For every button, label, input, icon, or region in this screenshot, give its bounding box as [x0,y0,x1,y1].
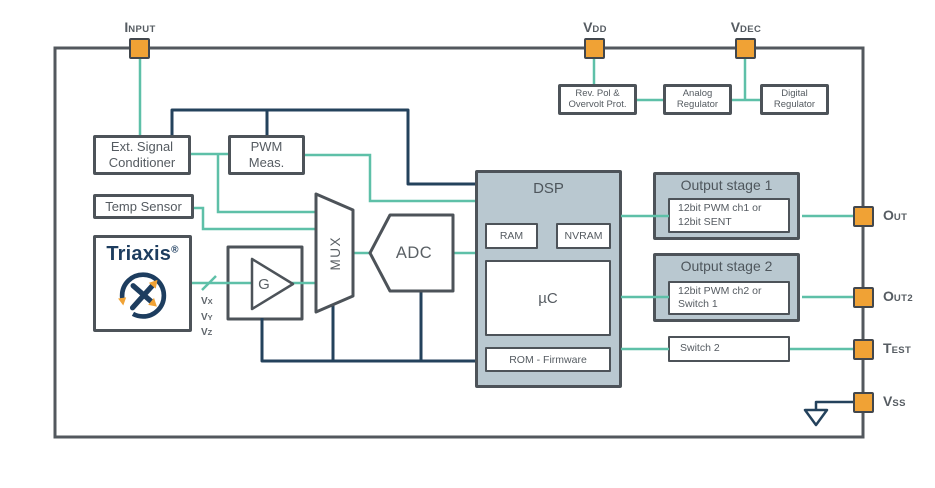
block-diagram: Rev. Pol & Overvolt Prot. Analog Regulat… [0,0,935,488]
dsp-title: DSP [475,180,622,197]
digital-reg-line2: Regulator [774,100,815,111]
pin-vdd [584,38,605,59]
output-stage2-option-box: 12bit PWM ch2 or Switch 1 [668,281,790,315]
mux-label: MUX [318,198,352,308]
ext-signal-line1: Ext. Signal [111,139,173,155]
signal-vz: VZ [201,324,213,340]
rom-firmware-block: ROM - Firmware [485,347,611,372]
pwm-meas-line2: Meas. [249,155,284,171]
temp-sensor-block: Temp Sensor [93,194,194,219]
rev-pol-line2: Overvolt Prot. [568,100,626,111]
output-stage1-line1: 12bit PWM ch1 or [678,202,761,215]
pin-vdd-label: VDD [559,19,631,37]
triaxis-icon [114,266,172,324]
pin-vdec [735,38,756,59]
gain-label: G [250,272,278,296]
signal-labels: VX VY VZ [201,293,213,340]
pin-input-label: INPUT [104,19,176,37]
analog-reg-line2: Regulator [677,100,718,111]
temp-sensor-label: Temp Sensor [105,199,182,215]
triaxis-logo: Triaxis® [106,242,178,266]
pin-vss-label: VSS [883,393,906,411]
digital-regulator-block: Digital Regulator [760,84,829,115]
pin-out2-label: OUT2 [883,288,913,306]
signal-vy: VY [201,309,213,325]
switch2-block: Switch 2 [668,336,790,362]
pin-input [129,38,150,59]
output-stage2-line2: Switch 1 [678,298,718,311]
nvram-block: NVRAM [556,223,611,249]
signal-vx: VX [201,293,213,309]
pin-out [853,206,874,227]
output-stage1-option-box: 12bit PWM ch1 or 12bit SENT [668,198,790,233]
adc-label: ADC [382,238,446,268]
pwm-meas-line1: PWM [251,139,283,155]
pwm-meas-block: PWM Meas. [228,135,305,175]
output-stage2-title: Output stage 2 [653,258,800,274]
pin-vss [853,392,874,413]
analog-regulator-block: Analog Regulator [663,84,732,115]
ext-signal-conditioner-block: Ext. Signal Conditioner [93,135,191,175]
output-stage2-line1: 12bit PWM ch2 or [678,285,761,298]
pin-test-label: TEST [883,340,911,358]
output-stage1-line2: 12bit SENT [678,216,732,229]
pin-out-label: OUT [883,207,907,225]
digital-reg-line1: Digital [781,89,807,100]
uc-block: µC [485,260,611,336]
rev-pol-line1: Rev. Pol & [575,89,619,100]
output-stage1-title: Output stage 1 [653,177,800,193]
triaxis-block: Triaxis® [93,235,192,332]
ext-signal-line2: Conditioner [109,155,176,171]
analog-reg-line1: Analog [683,89,713,100]
rev-pol-block: Rev. Pol & Overvolt Prot. [558,84,637,115]
ram-block: RAM [485,223,538,249]
pin-vdec-label: VDEC [710,19,782,37]
pin-test [853,339,874,360]
pin-out2 [853,287,874,308]
